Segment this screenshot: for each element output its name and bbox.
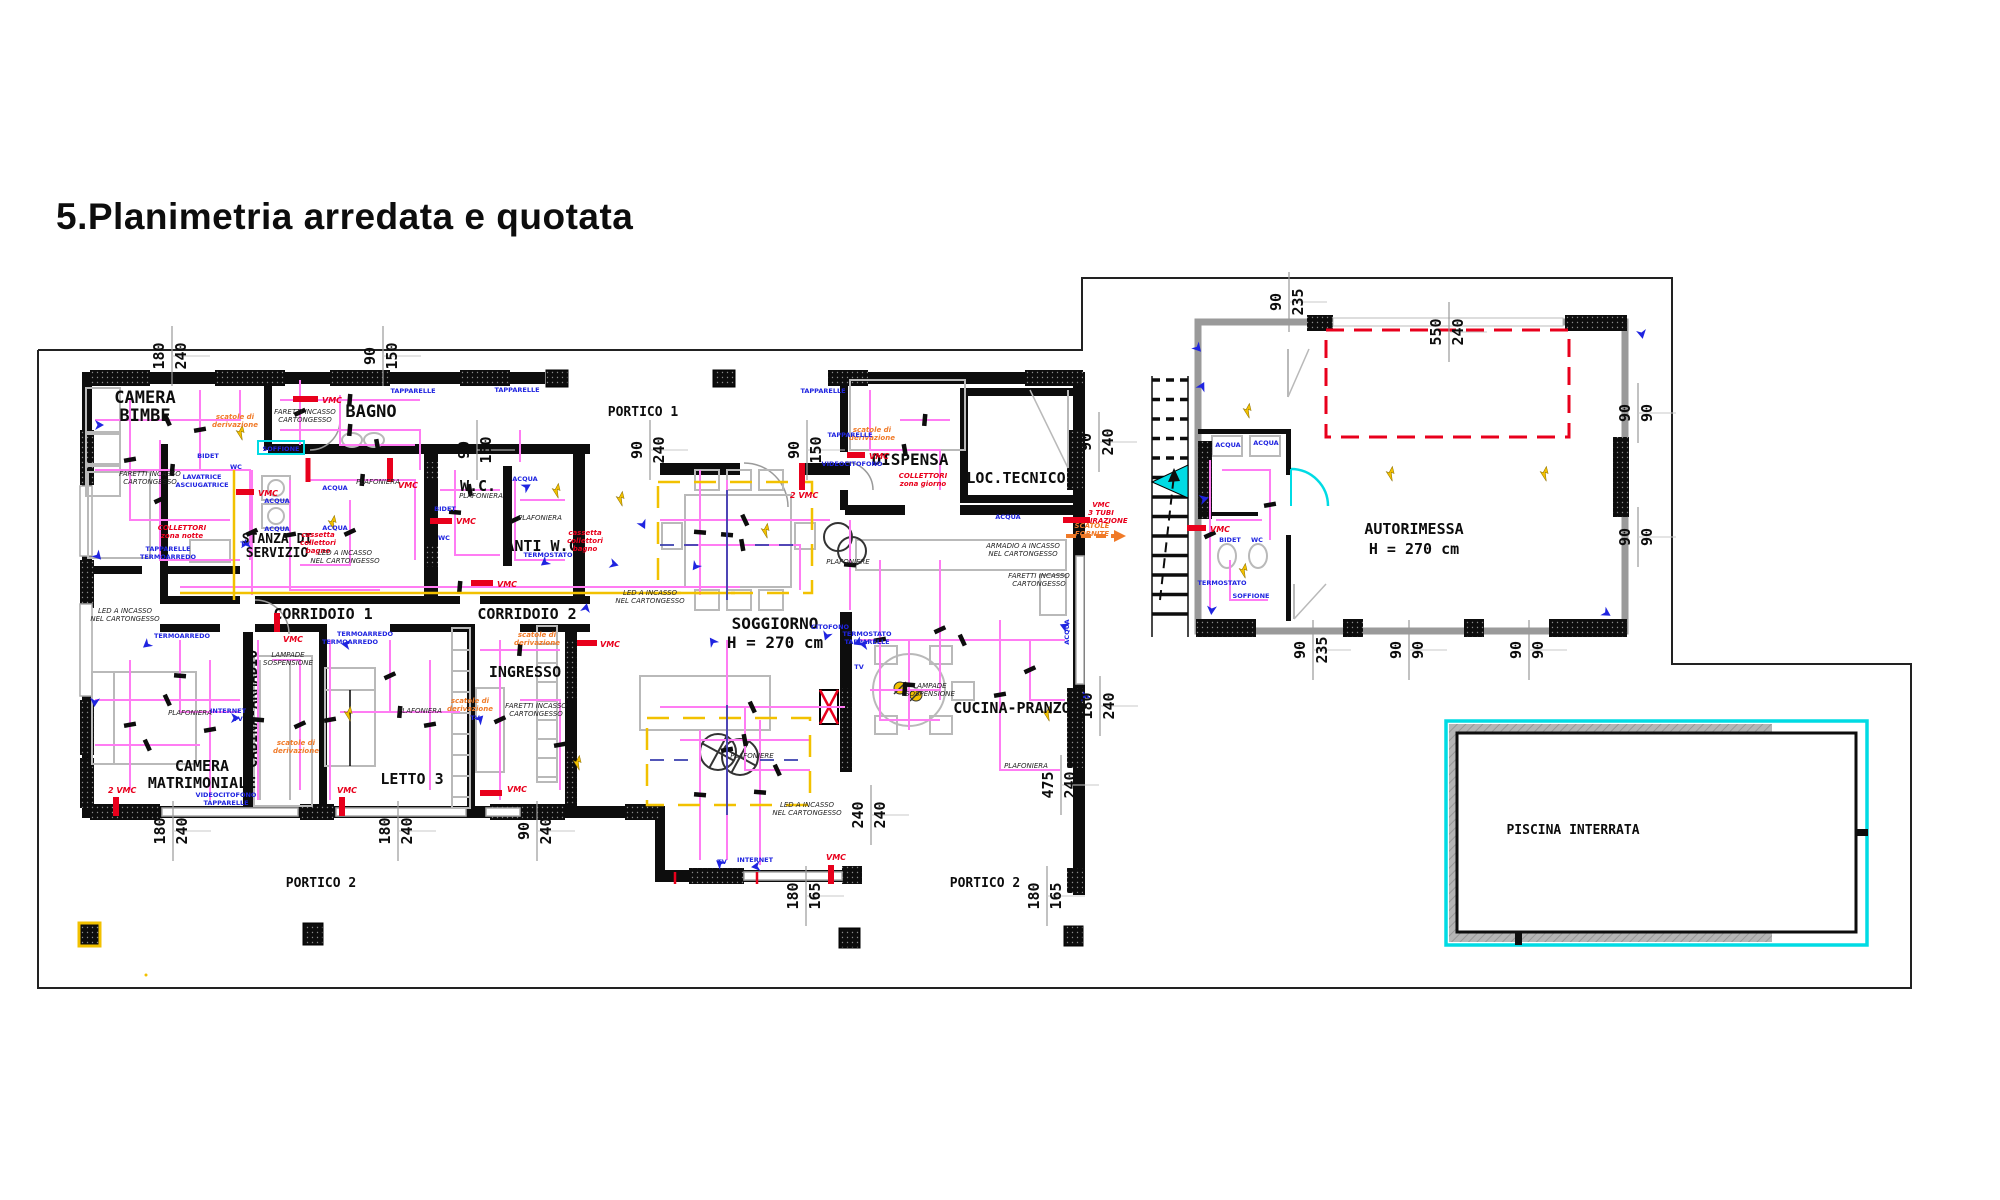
vmc-marker: VMC	[1187, 525, 1230, 534]
room-label-cabina-armadio: CABINA-ARMADIO	[245, 650, 261, 768]
svg-text:180: 180	[150, 342, 168, 369]
svg-text:VMC: VMC	[1092, 501, 1110, 509]
svg-text:PLAFONIERA: PLAFONIERA	[459, 492, 503, 500]
svg-text:CARTONGESSO: CARTONGESSO	[278, 416, 332, 424]
red-note: COLLETTORIzona giorno	[899, 472, 948, 488]
svg-text:180: 180	[151, 817, 169, 844]
utility-label: ACQUA	[322, 484, 347, 492]
svg-text:collettori: collettori	[567, 537, 603, 545]
utility-label: TV	[854, 663, 863, 671]
svg-text:zona notte: zona notte	[160, 532, 204, 540]
svg-text:PLAFONIERA: PLAFONIERA	[1004, 762, 1048, 770]
room-label-text: PISCINA INTERRATA	[1506, 823, 1639, 838]
svg-text:150: 150	[477, 436, 495, 463]
svg-text:SOSPENSIONE: SOSPENSIONE	[263, 659, 314, 667]
svg-text:165: 165	[1047, 882, 1065, 909]
fixture-note: FARETTI INCASSOCARTONGESSO	[274, 408, 336, 424]
room-label-text: BAGNO	[345, 402, 396, 422]
page-title: 5.Planimetria arredata e quotata	[56, 196, 633, 238]
utility-label: ACQUA	[1253, 439, 1278, 447]
svg-text:VMC: VMC	[337, 786, 357, 795]
svg-text:180: 180	[784, 882, 802, 909]
utility-label: WC	[230, 463, 242, 471]
svg-text:CARTONGESSO: CARTONGESSO	[1012, 580, 1066, 588]
floor-plan-drawing: CAMERABIMBEBAGNOW.C.ANTI W.C.STANZA DISE…	[0, 0, 2000, 1200]
svg-text:90: 90	[785, 441, 803, 459]
svg-text:235: 235	[1289, 288, 1307, 315]
utility-label: TV	[717, 858, 726, 866]
svg-text:SOSPENSIONE: SOSPENSIONE	[905, 690, 956, 698]
utility-label: TERMOARREDO	[140, 553, 197, 561]
svg-text:FARETTI INCASSO: FARETTI INCASSO	[119, 470, 181, 478]
svg-text:PLAFONIERE: PLAFONIERE	[826, 558, 870, 566]
utility-label: TAPPARELLE	[390, 387, 435, 395]
fixture-note: LAMPADESOSPENSIONE	[263, 651, 314, 667]
svg-text:FARETTI INCASSO: FARETTI INCASSO	[1008, 572, 1070, 580]
room-label-text: H = 270 cm	[727, 633, 824, 652]
fixture-note: PLAFONIERA	[398, 707, 442, 715]
utility-label: WC	[438, 534, 450, 542]
room-label-soggiorno: SOGGIORNOH = 270 cm	[727, 614, 824, 652]
svg-text:collettori: collettori	[300, 539, 336, 547]
room-label-bagno: BAGNO	[345, 402, 396, 422]
svg-text:3 TUBI: 3 TUBI	[1088, 509, 1114, 517]
svg-text:240: 240	[650, 436, 668, 463]
utility-label: ACQUA	[322, 524, 347, 532]
fixture-note: FARETTI INCASSOCARTONGESSO	[505, 702, 567, 718]
room-label-text: SOGGIORNO	[732, 614, 819, 633]
svg-text:235: 235	[1313, 636, 1331, 663]
svg-text:bagno: bagno	[573, 545, 598, 553]
svg-text:240: 240	[1100, 692, 1118, 719]
svg-text:scatole di: scatole di	[277, 739, 316, 747]
utility-label: CITOFONO	[811, 623, 850, 631]
svg-text:NEL CARTONGESSO: NEL CARTONGESSO	[615, 597, 685, 605]
derivation-box-note: SCATOLEFORNITE	[1075, 522, 1110, 538]
fixture-note: LAMPADESOSPENSIONE	[905, 682, 956, 698]
room-label-text: CAMERA	[175, 757, 229, 775]
svg-text:cassetta: cassetta	[568, 529, 602, 537]
svg-text:LED A INCASSO: LED A INCASSO	[318, 549, 373, 557]
svg-text:FARETTI INCASSO: FARETTI INCASSO	[505, 702, 567, 710]
utility-label: SOFFIONE	[263, 445, 300, 453]
svg-text:180: 180	[376, 817, 394, 844]
room-label-corridoio-2: CORRIDOIO 2	[477, 605, 576, 623]
red-note: COLLETTORIzona notte	[158, 524, 207, 540]
room-label-camera-bimbe: CAMERABIMBE	[114, 388, 175, 426]
fixture-note: PLAFONIERA	[518, 514, 562, 522]
svg-text:NEL CARTONGESSO: NEL CARTONGESSO	[310, 557, 380, 565]
svg-text:PLAFONIERA: PLAFONIERA	[168, 709, 212, 717]
room-label-text: BIMBE	[119, 406, 170, 426]
svg-text:zona giorno: zona giorno	[899, 480, 947, 488]
svg-text:180: 180	[1078, 692, 1096, 719]
fixture-note: PLAFONIERA	[459, 492, 503, 500]
svg-text:VMC: VMC	[398, 481, 418, 490]
svg-text:VMC: VMC	[826, 853, 846, 862]
svg-text:VMC: VMC	[1210, 525, 1230, 534]
svg-text:240: 240	[1449, 318, 1467, 345]
svg-text:150: 150	[383, 342, 401, 369]
vmc-marker: VMC	[480, 785, 527, 794]
svg-text:240: 240	[173, 817, 191, 844]
svg-text:VMC: VMC	[283, 635, 303, 644]
svg-text:FARETTI INCASSO: FARETTI INCASSO	[274, 408, 336, 416]
svg-text:90: 90	[455, 441, 473, 459]
room-label-ingresso: INGRESSO	[489, 663, 561, 681]
room-label-camera-matrimoniale: CAMERAMATRIMONIALE	[148, 757, 256, 792]
dimension-label: 240240	[849, 785, 909, 845]
svg-text:scatole di: scatole di	[518, 631, 557, 639]
utility-label: BIDET	[1219, 536, 1241, 544]
room-label-text: LOC.TECNICO	[966, 469, 1065, 487]
svg-text:PLAFONIERA: PLAFONIERA	[356, 478, 400, 486]
svg-text:90: 90	[1616, 528, 1634, 546]
svg-text:VMC: VMC	[497, 580, 517, 589]
svg-text:derivazione: derivazione	[212, 421, 258, 429]
dimension-label: 90240	[1077, 412, 1137, 472]
utility-label: SOFFIONE	[1233, 592, 1270, 600]
room-label-text: PORTICO 2	[950, 876, 1020, 891]
svg-text:90: 90	[1267, 293, 1285, 311]
fixture-note: PLAFONIERA	[1004, 762, 1048, 770]
svg-text:derivazione: derivazione	[514, 639, 560, 647]
room-label-portico-2-sx: PORTICO 2	[286, 876, 356, 891]
room-label-text: PORTICO 2	[286, 876, 356, 891]
room-label-text: CORRIDOIO 1	[273, 605, 372, 623]
utility-label: ACQUA	[1215, 441, 1240, 449]
room-label-corridoio-1: CORRIDOIO 1	[273, 605, 372, 623]
svg-text:COLLETTORI: COLLETTORI	[158, 524, 207, 532]
svg-text:90: 90	[628, 441, 646, 459]
fixture-note: FARETTI INCASSOCARTONGESSO	[1008, 572, 1070, 588]
utility-label: TERMOSTATO	[1198, 579, 1247, 587]
utility-label: TAPPARELLE	[844, 638, 889, 646]
svg-text:240: 240	[172, 342, 190, 369]
utility-label: ACQUA	[1063, 619, 1071, 644]
svg-text:LED A INCASSO: LED A INCASSO	[98, 607, 153, 615]
utility-label: TAPPARELLE	[800, 387, 845, 395]
svg-text:2 VMC: 2 VMC	[790, 491, 819, 500]
svg-text:NEL CARTONGESSO: NEL CARTONGESSO	[988, 550, 1058, 558]
utility-label: BIDET	[434, 505, 456, 513]
utility-label: ACQUA	[264, 525, 289, 533]
room-label-loc-tecnico: LOC.TECNICO	[966, 469, 1065, 487]
svg-text:PLAFONIERA: PLAFONIERA	[518, 514, 562, 522]
utility-label: ASCIUGATRICE	[175, 481, 228, 489]
fixture-note: PLAFONIERA	[356, 478, 400, 486]
red-note: cassettacollettoribagno	[567, 529, 603, 553]
fixture-note: LED A INCASSONEL CARTONGESSO	[615, 589, 685, 605]
svg-text:LED A INCASSO: LED A INCASSO	[780, 801, 835, 809]
utility-label: ACQUA	[264, 497, 289, 505]
svg-text:COLLETTORI: COLLETTORI	[899, 472, 948, 480]
derivation-box-note: scatole diderivazione	[514, 631, 560, 647]
utility-label: VIDEOCITOFONO	[822, 460, 883, 468]
svg-text:NEL CARTONGESSO: NEL CARTONGESSO	[772, 809, 842, 817]
room-label-text: H = 270 cm	[1369, 540, 1459, 558]
svg-text:cassetta: cassetta	[301, 531, 335, 539]
utility-label: VIDEOCITOFONO	[196, 791, 257, 799]
svg-text:90: 90	[1638, 528, 1656, 546]
utility-label: BIDET	[197, 452, 219, 460]
svg-text:90: 90	[1387, 641, 1405, 659]
floor-plan-page: 5.Planimetria arredata e quotata CAMERAB…	[0, 0, 2000, 1200]
svg-text:90: 90	[1507, 641, 1525, 659]
svg-text:VMC: VMC	[600, 640, 620, 649]
svg-text:derivazione: derivazione	[273, 747, 319, 755]
utility-label: ACQUA	[512, 475, 537, 483]
room-label-autorimessa: AUTORIMESSAH = 270 cm	[1364, 520, 1463, 558]
svg-text:90: 90	[1529, 641, 1547, 659]
utility-label: TERMOARREDO	[337, 630, 394, 638]
fixture-note: PLAFONIERA	[168, 709, 212, 717]
svg-text:240: 240	[871, 801, 889, 828]
svg-text:90: 90	[1409, 641, 1427, 659]
derivation-box-note: scatole diderivazione	[273, 739, 319, 755]
svg-text:ARMADIO A INCASSO: ARMADIO A INCASSO	[985, 542, 1060, 550]
utility-label: TERMOARREDO	[154, 632, 211, 640]
svg-text:VMC: VMC	[322, 396, 342, 405]
derivation-box-note: scatole diderivazione	[212, 413, 258, 429]
svg-text:240: 240	[398, 817, 416, 844]
svg-text:180: 180	[1025, 882, 1043, 909]
svg-text:90: 90	[1638, 404, 1656, 422]
vmc-marker: VMC	[577, 640, 620, 649]
room-label-piscina-interrata: PISCINA INTERRATA	[1506, 823, 1639, 838]
utility-label: INTERNET	[210, 707, 247, 715]
svg-text:PLAFONIERA: PLAFONIERA	[398, 707, 442, 715]
room-label-text: CABINA-ARMADIO	[245, 650, 261, 768]
fixture-note: PLAFONIERE	[730, 752, 774, 760]
svg-text:NEL CARTONGESSO: NEL CARTONGESSO	[90, 615, 160, 623]
svg-text:90: 90	[1616, 404, 1634, 422]
svg-text:240: 240	[1061, 771, 1079, 798]
svg-text:CARTONGESSO: CARTONGESSO	[123, 478, 177, 486]
fixture-note: FARETTI INCASSOCARTONGESSO	[119, 470, 181, 486]
svg-text:240: 240	[537, 817, 555, 844]
svg-text:240: 240	[1099, 428, 1117, 455]
svg-text:LAMPADE: LAMPADE	[913, 682, 947, 690]
room-label-text: INGRESSO	[489, 663, 561, 681]
svg-text:CARTONGESSO: CARTONGESSO	[509, 710, 563, 718]
utility-label: TERMOSTATO	[843, 630, 892, 638]
svg-text:90: 90	[515, 822, 533, 840]
utility-label: LAVATRICE	[183, 473, 222, 481]
utility-label: TV	[240, 540, 249, 548]
dimension-label: 550240	[1427, 302, 1487, 362]
svg-text:scatole di: scatole di	[451, 697, 490, 705]
utility-label: TV	[233, 715, 242, 723]
room-label-text: LETTO 3	[380, 770, 443, 788]
svg-text:LAMPADE: LAMPADE	[271, 651, 305, 659]
utility-label: TAPPARELLE	[827, 431, 872, 439]
svg-text:165: 165	[806, 882, 824, 909]
utility-label: TV	[470, 714, 479, 722]
svg-text:derivazione: derivazione	[447, 705, 493, 713]
room-label-text: CORRIDOIO 2	[477, 605, 576, 623]
room-label-portico-2-dx: PORTICO 2	[950, 876, 1020, 891]
svg-text:550: 550	[1427, 318, 1445, 345]
derivation-box-note: scatole diderivazione	[447, 697, 493, 713]
utility-label: TAPPARELLE	[145, 545, 190, 553]
utility-label: TERMOARREDO	[322, 638, 379, 646]
utility-label: INTERNET	[737, 856, 774, 864]
svg-text:240: 240	[849, 801, 867, 828]
svg-text:2 VMC: 2 VMC	[108, 786, 137, 795]
room-label-portico-1: PORTICO 1	[608, 405, 679, 420]
dimension-label: 180240	[1078, 676, 1138, 736]
svg-text:90: 90	[1077, 433, 1095, 451]
room-label-text: SERVIZIO	[246, 546, 309, 561]
utility-label: TAPPARELLE	[494, 386, 539, 394]
svg-text:475: 475	[1039, 771, 1057, 798]
room-label-letto-3: LETTO 3	[380, 770, 443, 788]
svg-text:SCATOLE: SCATOLE	[1075, 522, 1110, 530]
fixture-note: LED A INCASSONEL CARTONGESSO	[90, 607, 160, 623]
room-label-text: MATRIMONIALE	[148, 774, 256, 792]
svg-text:scatole di: scatole di	[216, 413, 255, 421]
fixture-note: LED A INCASSONEL CARTONGESSO	[310, 549, 380, 565]
svg-text:LED A INCASSO: LED A INCASSO	[623, 589, 678, 597]
svg-text:90: 90	[1291, 641, 1309, 659]
room-label-text: PORTICO 1	[608, 405, 679, 420]
room-label-text: CUCINA-PRANZO	[953, 699, 1070, 717]
room-label-text: AUTORIMESSA	[1364, 520, 1463, 538]
svg-text:VMC: VMC	[507, 785, 527, 794]
room-label-cucina-pranzo: CUCINA-PRANZO	[953, 699, 1070, 717]
svg-text:FORNITE: FORNITE	[1075, 530, 1109, 538]
room-label-text: CAMERA	[114, 388, 175, 408]
utility-label: TAPPARELLE	[203, 799, 248, 807]
fixture-note: LED A INCASSONEL CARTONGESSO	[772, 801, 842, 817]
fixture-note: ARMADIO A INCASSONEL CARTONGESSO	[985, 542, 1060, 558]
fixture-note: PLAFONIERE	[826, 558, 870, 566]
utility-label: TERMOSTATO	[524, 551, 573, 559]
svg-text:VMC: VMC	[456, 517, 476, 526]
svg-text:PLAFONIERE: PLAFONIERE	[730, 752, 774, 760]
utility-label: WC	[1251, 536, 1263, 544]
svg-text:90: 90	[361, 347, 379, 365]
utility-label: ACQUA	[995, 513, 1020, 521]
